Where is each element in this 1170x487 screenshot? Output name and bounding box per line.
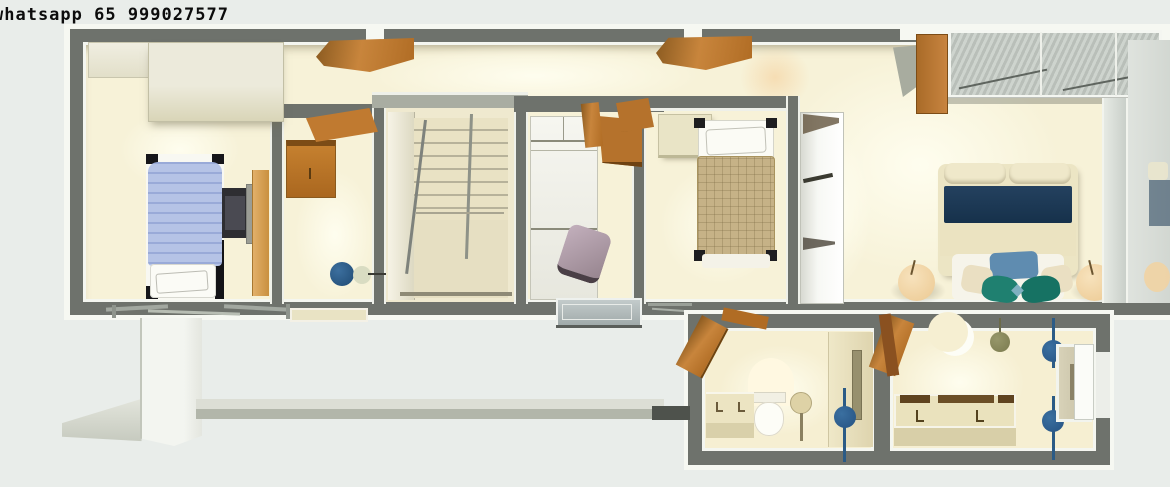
bath1-vanity <box>706 392 754 438</box>
bed2-foot-sheet <box>702 254 770 268</box>
bath1-pedestal <box>790 392 812 414</box>
master-navy-band <box>944 186 1072 223</box>
shower-head <box>990 332 1010 352</box>
bath2-sink-inset1 <box>900 395 930 403</box>
office-wall-cabinet <box>286 140 336 198</box>
closet-shelf-line2 <box>531 150 597 151</box>
bedroom2-wall-shelf <box>616 98 654 132</box>
white-pillar <box>140 318 202 446</box>
bath2-faucet2b <box>976 420 984 422</box>
wall-room1-room2 <box>270 112 284 304</box>
crescent-cutout <box>928 312 968 352</box>
side-runner <box>252 170 269 296</box>
floor-plan-render: whatsapp 65 999027577 <box>0 0 1170 487</box>
master-bolster-left <box>944 163 1006 184</box>
bath2-sink-inset2 <box>938 395 994 403</box>
terrace-ledge-top <box>196 399 664 409</box>
watermark-text: whatsapp 65 999027577 <box>0 5 229 25</box>
terrace-ledge-front <box>196 409 664 419</box>
office-chair-back <box>353 266 371 284</box>
glass-wardrobe-divider2 <box>1115 32 1117 96</box>
bed2-tan-duvet <box>697 156 775 256</box>
bath1-faucet2b <box>738 410 745 412</box>
master-cream-duvet <box>940 223 1076 256</box>
bath2-sink-inset3 <box>998 395 1014 403</box>
stair-treads <box>414 118 508 220</box>
wall-bedroom2-nook-top <box>646 96 800 111</box>
master-wood-cabinet <box>916 34 948 114</box>
office-chair-seat <box>330 262 354 286</box>
bath2-vanity-front <box>894 428 1016 446</box>
stair-rail-post <box>416 212 504 214</box>
bath1-towel-ball <box>834 406 856 428</box>
roof-eave-left <box>62 398 144 442</box>
master-bolster-right <box>1009 163 1071 184</box>
bath2-faucet1b <box>916 420 924 422</box>
stair-bottom-edge <box>400 292 512 296</box>
wardrobe-block <box>148 42 284 122</box>
corridor-wardrobe-units <box>800 112 844 304</box>
bed2-pillow-fold <box>705 126 766 155</box>
glass-wardrobe-divider <box>1040 32 1042 96</box>
bed1-pillow-fold <box>155 270 208 294</box>
nightstand-left <box>898 264 935 301</box>
bath1-partition <box>828 332 873 447</box>
stair-landing <box>414 220 508 298</box>
mirror-reflection-peach <box>1144 262 1170 292</box>
wall-stairs-top <box>372 92 528 108</box>
stair-left-wall <box>388 112 415 300</box>
mirror-reflection-cream <box>1148 162 1168 180</box>
terrace-ledge-cap <box>652 406 690 420</box>
wall-bedroom2-corridor <box>786 96 800 304</box>
bedroom2-window-bar <box>648 303 692 306</box>
toilet-bowl <box>754 402 784 436</box>
bath2-white-door <box>1074 344 1094 420</box>
glass-partition <box>1102 98 1128 303</box>
bed2-corner-tr <box>766 118 777 128</box>
window2-sill <box>290 308 368 322</box>
closet-door-split <box>563 117 564 140</box>
hall-window-base <box>556 325 642 328</box>
bath1-pedestal-stem <box>800 413 803 441</box>
desk-monitor-screen <box>225 196 245 230</box>
hall-window-pane <box>562 304 632 320</box>
mirror-reflection-navy <box>1149 180 1170 226</box>
bath2-wall-gap <box>1096 352 1110 418</box>
window1-post <box>112 305 116 318</box>
bed1-blue-duvet <box>148 162 222 266</box>
office-cabinet-handle <box>309 168 311 179</box>
bed2-corner-tl <box>694 118 705 128</box>
wall-stairs-closet <box>514 100 528 304</box>
bath1-faucet1b <box>716 410 723 412</box>
